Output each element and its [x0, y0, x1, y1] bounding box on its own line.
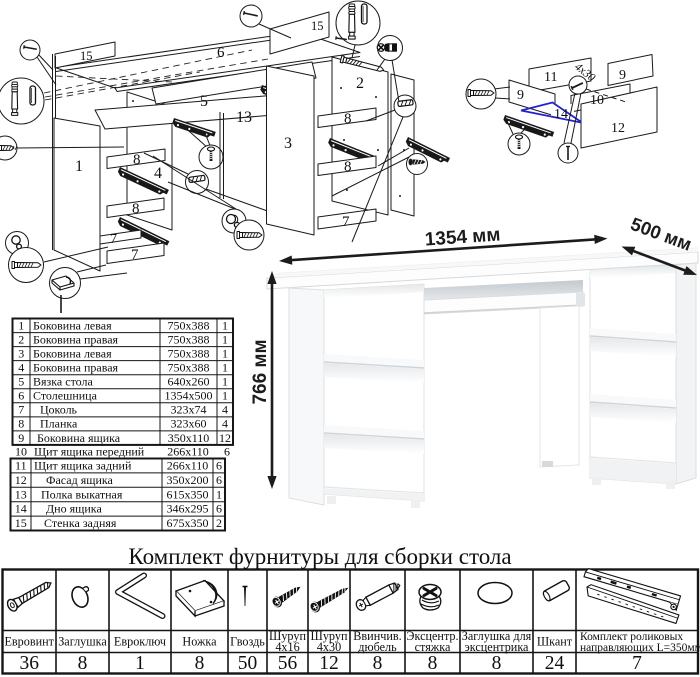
svg-text:1: 1 [75, 158, 83, 175]
svg-text:640х260: 640х260 [168, 375, 210, 389]
svg-text:15: 15 [311, 19, 324, 33]
svg-text:12: 12 [611, 121, 625, 136]
svg-text:Боковина ящика: Боковина ящика [37, 431, 121, 445]
svg-text:2: 2 [216, 516, 222, 530]
svg-text:8: 8 [344, 159, 352, 175]
svg-text:Полка выкатная: Полка выкатная [41, 487, 123, 501]
svg-text:14: 14 [15, 502, 27, 516]
svg-text:стяжка: стяжка [415, 640, 451, 654]
svg-text:13: 13 [236, 109, 252, 126]
svg-text:Боковина правая: Боковина правая [33, 361, 119, 375]
svg-text:1: 1 [222, 389, 228, 403]
svg-text:4х30: 4х30 [317, 640, 341, 654]
svg-text:Боковина левая: Боковина левая [33, 347, 112, 361]
svg-text:750х388: 750х388 [168, 332, 210, 346]
svg-text:Стенка задняя: Стенка задняя [44, 516, 117, 530]
svg-text:3: 3 [18, 347, 24, 361]
svg-text:Планка: Планка [40, 417, 78, 431]
svg-text:12: 12 [15, 473, 27, 487]
svg-text:6: 6 [217, 45, 225, 61]
svg-text:9: 9 [619, 68, 626, 83]
svg-text:Шкант: Шкант [537, 635, 573, 649]
svg-text:750х388: 750х388 [168, 347, 210, 361]
svg-text:1354х500: 1354х500 [165, 389, 213, 403]
svg-text:Заглушка: Заглушка [58, 635, 107, 649]
svg-text:6: 6 [216, 473, 222, 487]
svg-text:12: 12 [219, 431, 231, 445]
svg-text:350х200: 350х200 [167, 473, 209, 487]
svg-text:8: 8 [344, 111, 352, 127]
svg-text:56: 56 [278, 653, 298, 674]
svg-text:Евровинт: Евровинт [4, 635, 54, 649]
svg-text:615х350: 615х350 [167, 487, 209, 501]
svg-text:Щит ящика передний: Щит ящика передний [34, 445, 145, 459]
svg-text:266х110: 266х110 [167, 445, 209, 459]
svg-text:750х388: 750х388 [168, 318, 210, 332]
svg-text:5: 5 [18, 375, 24, 389]
svg-text:8: 8 [373, 653, 383, 674]
svg-text:24: 24 [545, 653, 565, 674]
svg-text:7: 7 [632, 653, 642, 674]
svg-text:1: 1 [222, 375, 228, 389]
svg-text:3: 3 [284, 135, 292, 152]
svg-text:10: 10 [15, 445, 27, 459]
svg-text:7: 7 [131, 247, 139, 263]
svg-text:7: 7 [18, 403, 24, 417]
svg-text:2: 2 [18, 332, 24, 346]
svg-text:Боковина левая: Боковина левая [33, 318, 112, 332]
svg-text:Дно ящика: Дно ящика [46, 502, 102, 516]
svg-text:12: 12 [319, 653, 339, 674]
svg-text:Боковина правая: Боковина правая [33, 332, 119, 346]
svg-text:8: 8 [428, 653, 438, 674]
svg-text:4: 4 [222, 403, 228, 417]
svg-text:8: 8 [492, 653, 502, 674]
svg-text:10: 10 [590, 93, 604, 108]
svg-text:8: 8 [195, 653, 205, 674]
svg-text:13: 13 [15, 487, 27, 501]
svg-text:1: 1 [222, 332, 228, 346]
svg-text:8: 8 [78, 653, 88, 674]
svg-text:5: 5 [200, 93, 208, 110]
svg-text:направляющих L=350мм: направляющих L=350мм [580, 642, 700, 654]
svg-text:1: 1 [135, 653, 145, 674]
svg-text:Комплект фурнитуры для сборки: Комплект фурнитуры для сборки стола [128, 544, 511, 569]
svg-text:2: 2 [356, 75, 364, 92]
svg-text:15: 15 [80, 49, 93, 63]
svg-text:Ножка: Ножка [182, 635, 217, 649]
svg-text:8: 8 [133, 152, 141, 168]
svg-text:6: 6 [224, 445, 230, 459]
svg-text:8: 8 [18, 417, 24, 431]
svg-text:323х74: 323х74 [171, 403, 207, 417]
svg-text:Гвоздь: Гвоздь [230, 635, 265, 649]
svg-text:6: 6 [18, 389, 24, 403]
svg-text:350х110: 350х110 [168, 431, 210, 445]
svg-text:6: 6 [216, 502, 222, 516]
svg-text:эксцентрика: эксцентрика [465, 640, 530, 654]
svg-text:4: 4 [154, 165, 162, 182]
svg-text:1: 1 [222, 318, 228, 332]
svg-text:675х350: 675х350 [167, 516, 209, 530]
svg-text:750х388: 750х388 [168, 361, 210, 375]
svg-text:766 мм: 766 мм [250, 339, 271, 404]
svg-text:346х295: 346х295 [167, 502, 209, 516]
svg-text:36: 36 [19, 653, 39, 674]
svg-text:1: 1 [222, 361, 228, 375]
svg-text:4: 4 [18, 361, 24, 375]
svg-text:9: 9 [517, 88, 524, 103]
svg-text:1: 1 [222, 347, 228, 361]
svg-text:Столешница: Столешница [33, 389, 98, 403]
svg-text:1: 1 [18, 318, 24, 332]
svg-text:7: 7 [110, 232, 117, 247]
svg-text:дюбель: дюбель [358, 640, 397, 654]
svg-text:14: 14 [554, 107, 568, 122]
svg-text:266х110: 266х110 [167, 459, 209, 473]
svg-text:Щит ящика задний: Щит ящика задний [34, 459, 132, 473]
svg-text:Цоколь: Цоколь [40, 403, 78, 417]
svg-text:6: 6 [216, 459, 222, 473]
svg-text:1: 1 [216, 487, 222, 501]
svg-text:9: 9 [18, 431, 24, 445]
svg-text:Вязка стола: Вязка стола [33, 375, 93, 389]
svg-text:323х60: 323х60 [171, 417, 207, 431]
svg-text:7: 7 [342, 214, 350, 230]
svg-text:11: 11 [15, 459, 27, 473]
svg-text:50: 50 [238, 653, 258, 674]
svg-text:Фасад ящика: Фасад ящика [46, 473, 114, 487]
svg-text:4х16: 4х16 [275, 640, 299, 654]
svg-text:Евроключ: Евроключ [114, 635, 166, 649]
svg-text:11: 11 [544, 70, 557, 85]
svg-text:8: 8 [132, 201, 140, 217]
svg-text:4: 4 [222, 417, 228, 431]
svg-text:15: 15 [15, 516, 27, 530]
